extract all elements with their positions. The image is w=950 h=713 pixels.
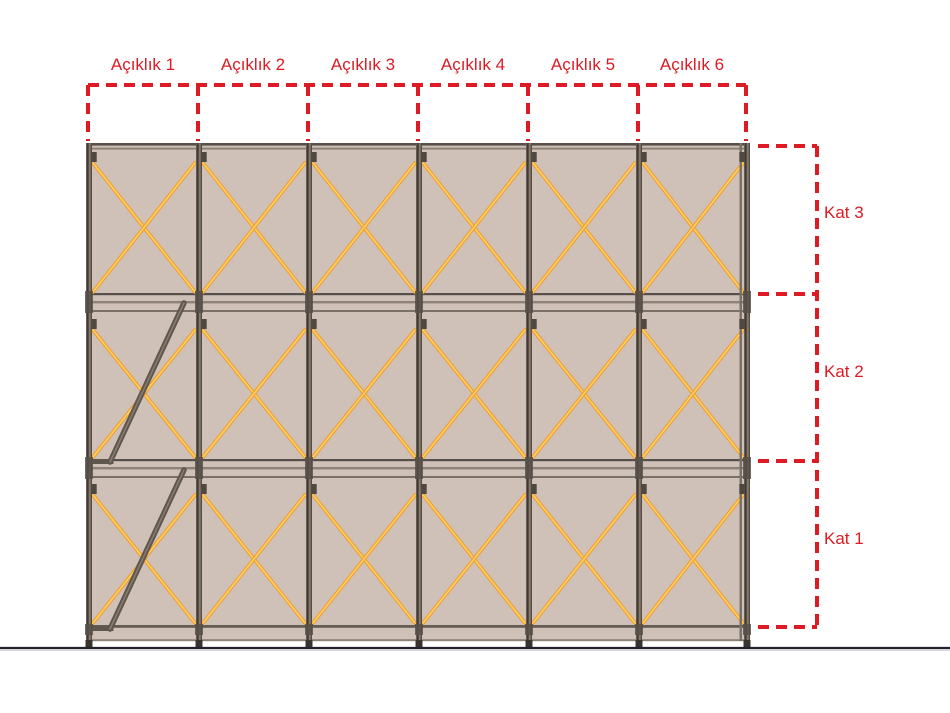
- post: [526, 143, 532, 641]
- post-coupler: [415, 291, 423, 313]
- brace-connector: [641, 484, 647, 494]
- brace-connector: [311, 319, 317, 329]
- post-coupler: [85, 624, 93, 635]
- bay-labels: Açıklık 1 Açıklık 2 Açıklık 3 Açıklık 4 …: [111, 55, 724, 74]
- brace-connector: [91, 152, 97, 162]
- bay-label-2: Açıklık 2: [221, 55, 285, 74]
- post-coupler: [415, 457, 423, 479]
- brace-connector: [421, 319, 427, 329]
- post-coupler: [195, 291, 203, 313]
- floor-label-kat2: Kat 2: [824, 362, 864, 381]
- floor-label-kat3: Kat 3: [824, 203, 864, 222]
- post-coupler: [305, 457, 313, 479]
- post-coupler: [525, 624, 533, 635]
- post-coupler: [305, 624, 313, 635]
- scaffold-structure: [85, 143, 751, 649]
- post-coupler: [635, 457, 643, 479]
- scaffold-elevation-diagram: Açıklık 1 Açıklık 2 Açıklık 3 Açıklık 4 …: [0, 0, 950, 713]
- bay-label-5: Açıklık 5: [551, 55, 615, 74]
- brace-connector: [311, 484, 317, 494]
- bay-label-4: Açıklık 4: [441, 55, 505, 74]
- diagram-canvas: Açıklık 1 Açıklık 2 Açıklık 3 Açıklık 4 …: [0, 0, 950, 713]
- post: [636, 143, 642, 641]
- post-coupler: [85, 291, 93, 313]
- bay-label-1: Açıklık 1: [111, 55, 175, 74]
- brace-connector: [641, 319, 647, 329]
- post-coupler: [743, 291, 751, 313]
- brace-connector: [739, 484, 745, 494]
- brace-connector: [531, 319, 537, 329]
- brace-connector: [201, 319, 207, 329]
- floor-labels: Kat 3 Kat 2 Kat 1: [824, 203, 864, 548]
- post-coupler: [525, 457, 533, 479]
- brace-connector: [421, 152, 427, 162]
- brace-connector: [421, 484, 427, 494]
- post: [86, 143, 92, 641]
- brace-connector: [91, 484, 97, 494]
- post: [196, 143, 202, 641]
- post-coupler: [415, 624, 423, 635]
- brace-connector: [739, 319, 745, 329]
- post-coupler: [743, 624, 751, 635]
- bay-label-6: Açıklık 6: [660, 55, 724, 74]
- post: [744, 143, 750, 641]
- bay-label-3: Açıklık 3: [331, 55, 395, 74]
- post-coupler: [85, 457, 93, 479]
- brace-connector: [531, 152, 537, 162]
- brace-connector: [201, 152, 207, 162]
- post-inner-line: [740, 143, 743, 641]
- brace-connector: [739, 152, 745, 162]
- brace-connector: [641, 152, 647, 162]
- brace-connector: [531, 484, 537, 494]
- brace-connector: [311, 152, 317, 162]
- post: [416, 143, 422, 641]
- post-coupler: [635, 291, 643, 313]
- post-coupler: [305, 291, 313, 313]
- post-coupler: [525, 291, 533, 313]
- post-coupler: [635, 624, 643, 635]
- ground-line: [0, 648, 950, 650]
- post-coupler: [195, 457, 203, 479]
- post: [306, 143, 312, 641]
- brace-connector: [201, 484, 207, 494]
- post-coupler: [743, 457, 751, 479]
- floor-label-kat1: Kat 1: [824, 529, 864, 548]
- brace-connector: [91, 319, 97, 329]
- post-coupler: [195, 624, 203, 635]
